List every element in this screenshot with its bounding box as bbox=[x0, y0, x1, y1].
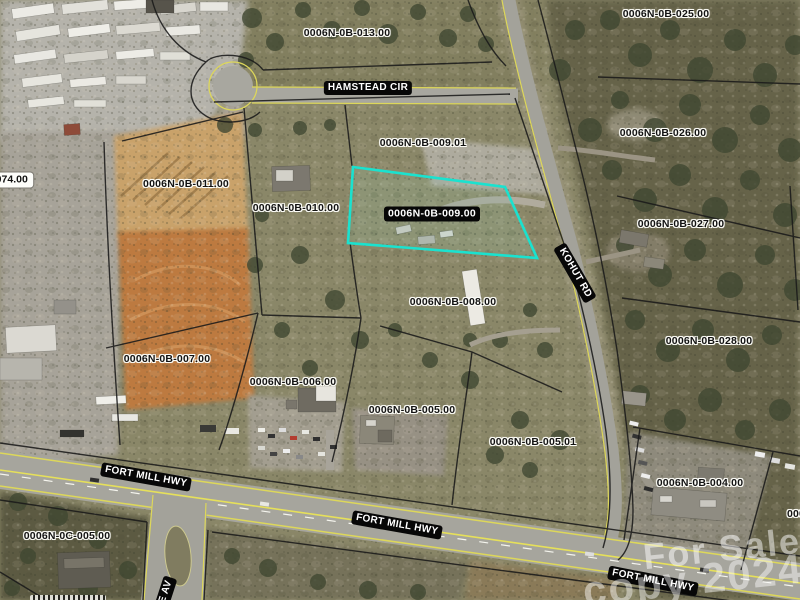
parcel-label-0006N-0B-006-00[interactable]: 0006N-0B-006.00 bbox=[250, 376, 336, 388]
parcel-label-0006N-0B-009-01[interactable]: 0006N-0B-009.01 bbox=[380, 137, 466, 149]
parcel-label-0006N-0B-027-00[interactable]: 0006N-0B-027.00 bbox=[638, 218, 724, 230]
parcel-label-0006N-0B-013-00[interactable]: 0006N-0B-013.00 bbox=[304, 27, 390, 39]
parcel-label-0006N-0C-005-00[interactable]: 0006N-0C-005.00 bbox=[24, 530, 110, 542]
parcel-label-0006N-0B-009-00-selected[interactable]: 0006N-0B-009.00 bbox=[384, 207, 480, 222]
parcel-label-0006N-0B-005-01[interactable]: 0006N-0B-005.01 bbox=[490, 436, 576, 448]
parcel-label-0006N-0B-026-00[interactable]: 0006N-0B-026.00 bbox=[620, 127, 706, 139]
parcel-label-0006N-0B-025-00[interactable]: 0006N-0B-025.00 bbox=[623, 8, 709, 20]
parcel-label-0006N-0B-004-00[interactable]: 0006N-0B-004.00 bbox=[657, 477, 743, 489]
parcel-label-0006N-0B-005-00[interactable]: 0006N-0B-005.00 bbox=[369, 404, 455, 416]
parcel-label-partial-074-00[interactable]: -074.00 bbox=[0, 173, 33, 188]
clipped-label-bottom bbox=[30, 595, 106, 600]
gis-map-canvas[interactable]: 0006N-0B-013.00 0006N-0B-025.00 0006N-0B… bbox=[0, 0, 800, 600]
parcel-label-0006N-0B-007-00[interactable]: 0006N-0B-007.00 bbox=[124, 353, 210, 365]
parcel-label-0006N-0B-010-00[interactable]: 0006N-0B-010.00 bbox=[253, 202, 339, 214]
parcel-label-0006N-0B-008-00[interactable]: 0006N-0B-008.00 bbox=[410, 296, 496, 308]
parcel-label-partial-right[interactable]: 000 bbox=[787, 508, 800, 520]
parcel-label-0006N-0B-011-00[interactable]: 0006N-0B-011.00 bbox=[143, 178, 229, 190]
road-label-hamstead-cir: HAMSTEAD CIR bbox=[324, 81, 412, 95]
parcel-label-0006N-0B-028-00[interactable]: 0006N-0B-028.00 bbox=[666, 335, 752, 347]
